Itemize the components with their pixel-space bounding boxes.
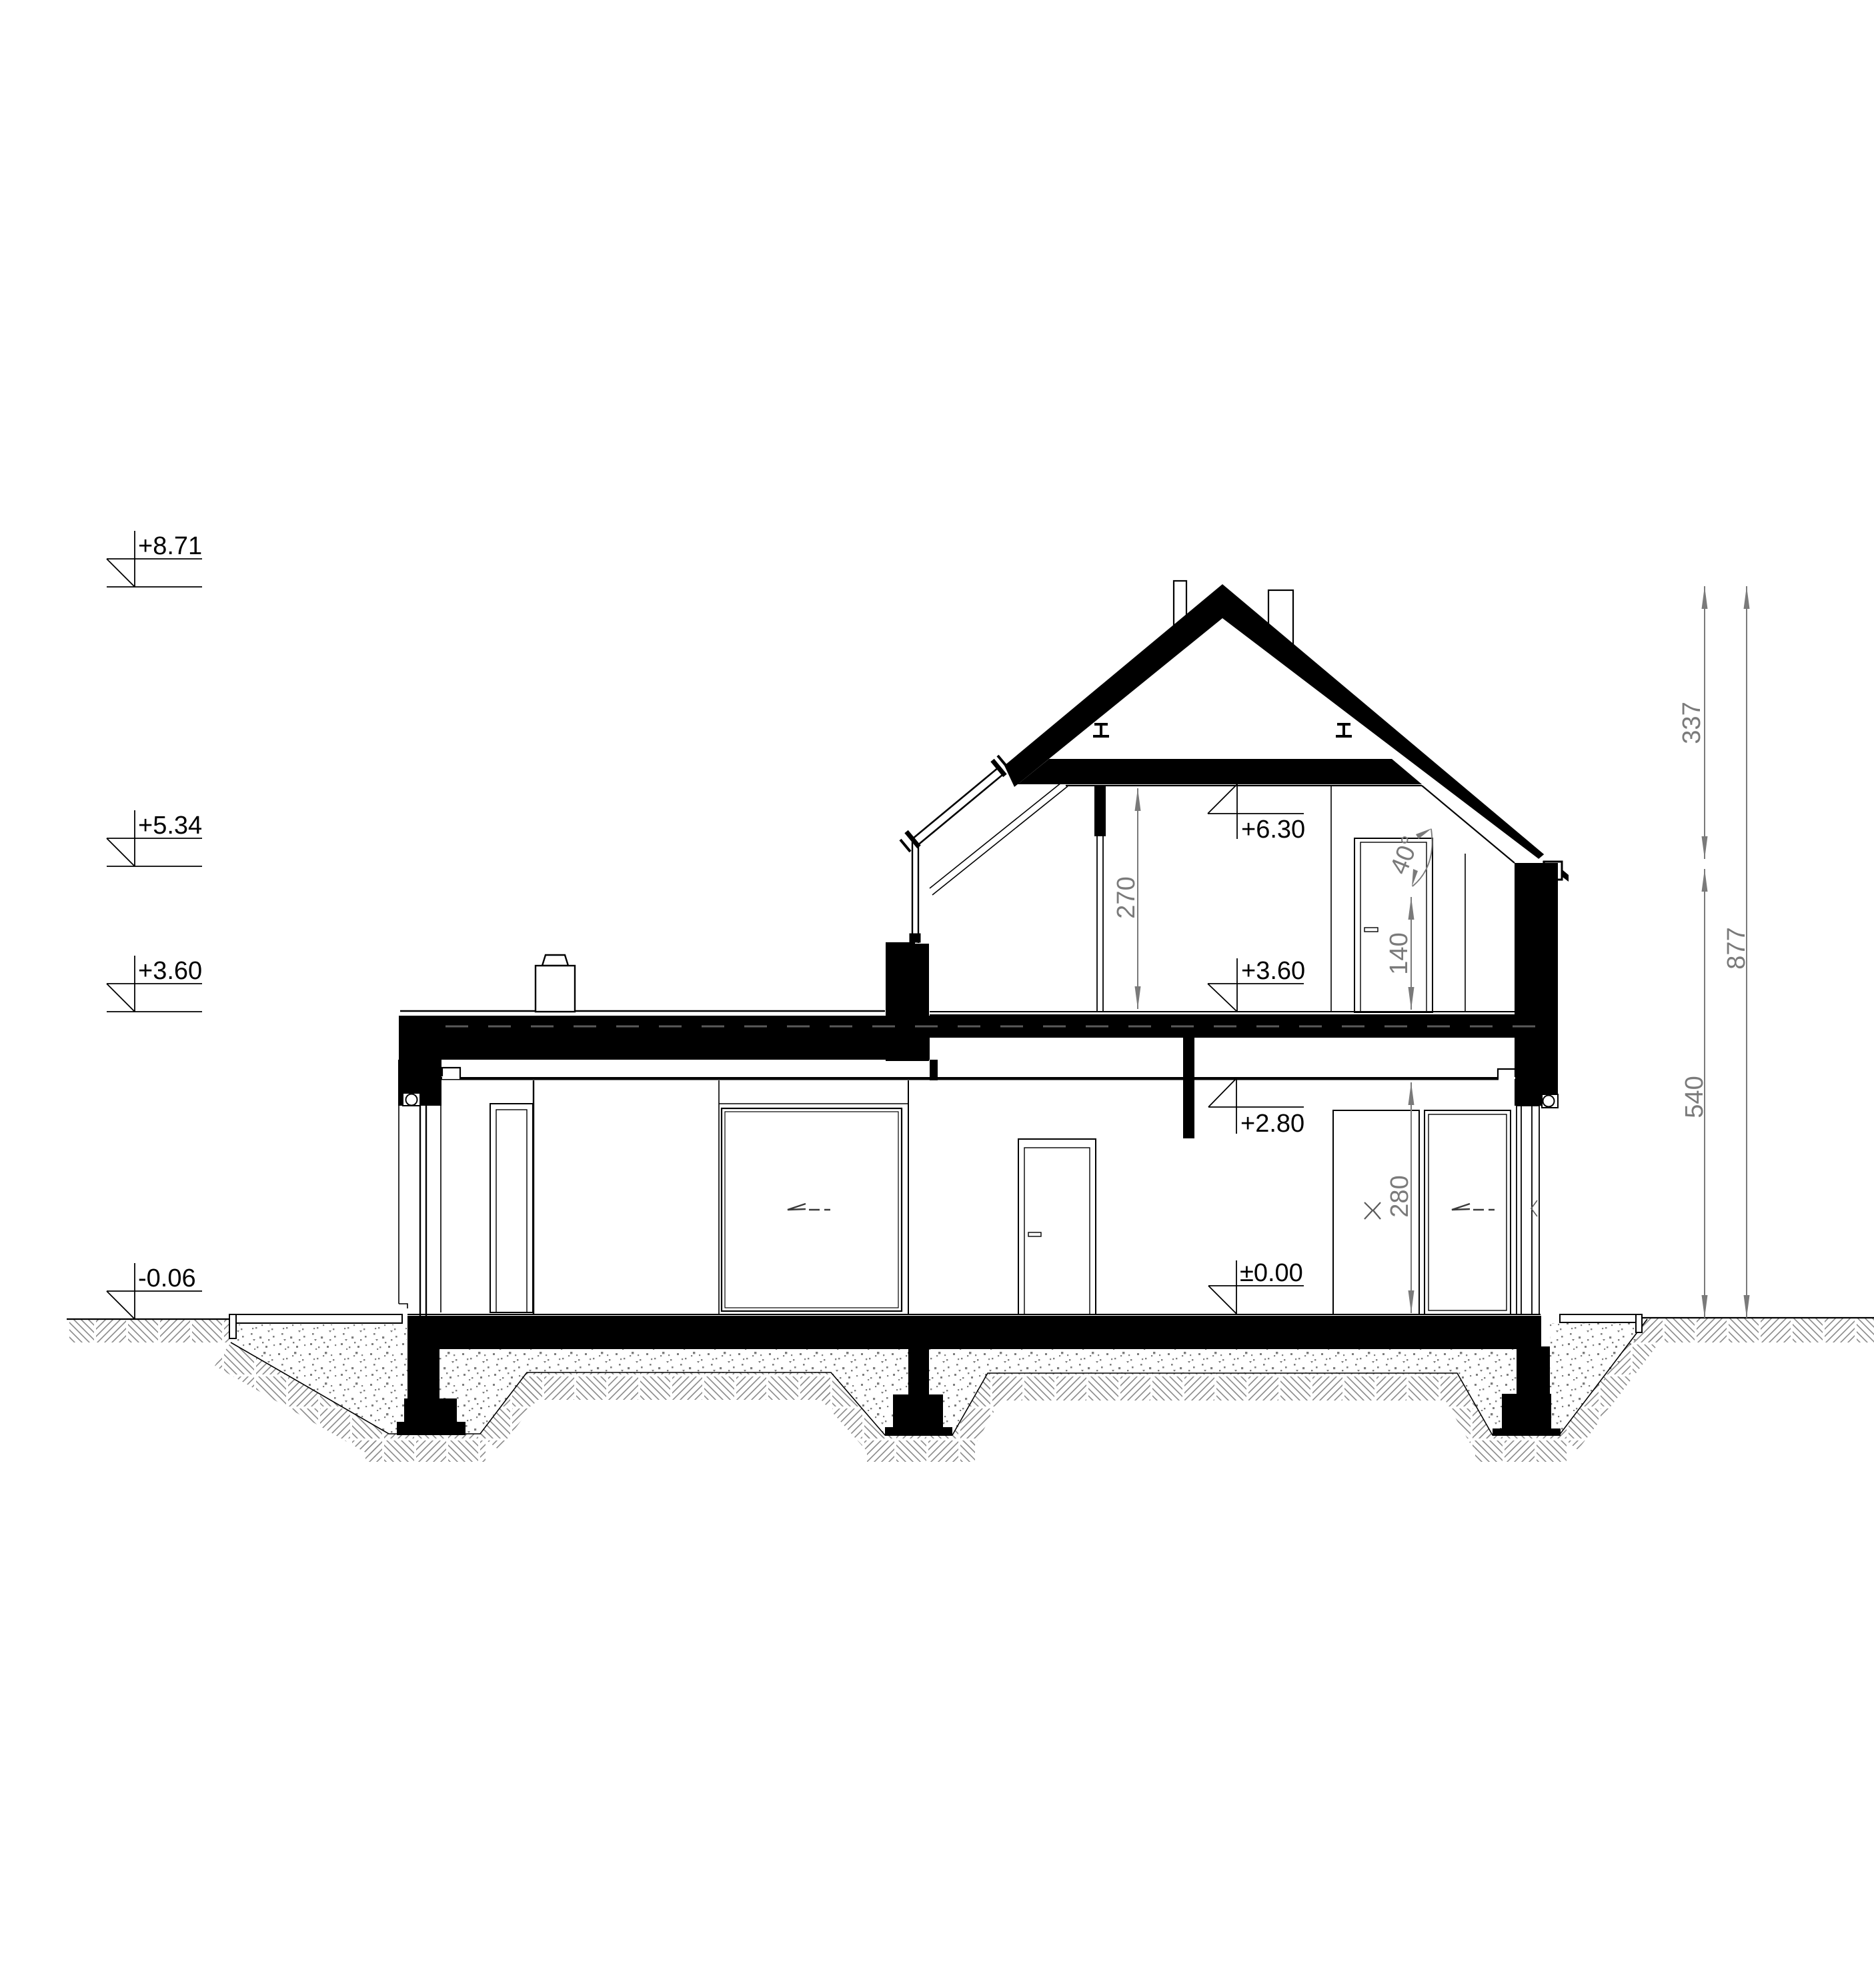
svg-text:±0.00: ±0.00 [1240, 1259, 1303, 1287]
svg-text:540: 540 [1681, 1076, 1709, 1118]
svg-text:+3.60: +3.60 [138, 957, 202, 985]
svg-text:+5.34: +5.34 [138, 812, 202, 840]
svg-text:270: 270 [1112, 876, 1140, 918]
svg-text:+3.60: +3.60 [1241, 957, 1305, 985]
svg-text:-0.06: -0.06 [138, 1264, 196, 1292]
svg-text:140: 140 [1385, 932, 1413, 974]
svg-text:+6.30: +6.30 [1241, 816, 1305, 844]
svg-text:+2.80: +2.80 [1240, 1110, 1304, 1138]
svg-text:337: 337 [1678, 702, 1706, 744]
svg-text:+8.71: +8.71 [138, 532, 202, 560]
svg-text:280: 280 [1386, 1175, 1414, 1217]
svg-text:877: 877 [1723, 927, 1751, 969]
